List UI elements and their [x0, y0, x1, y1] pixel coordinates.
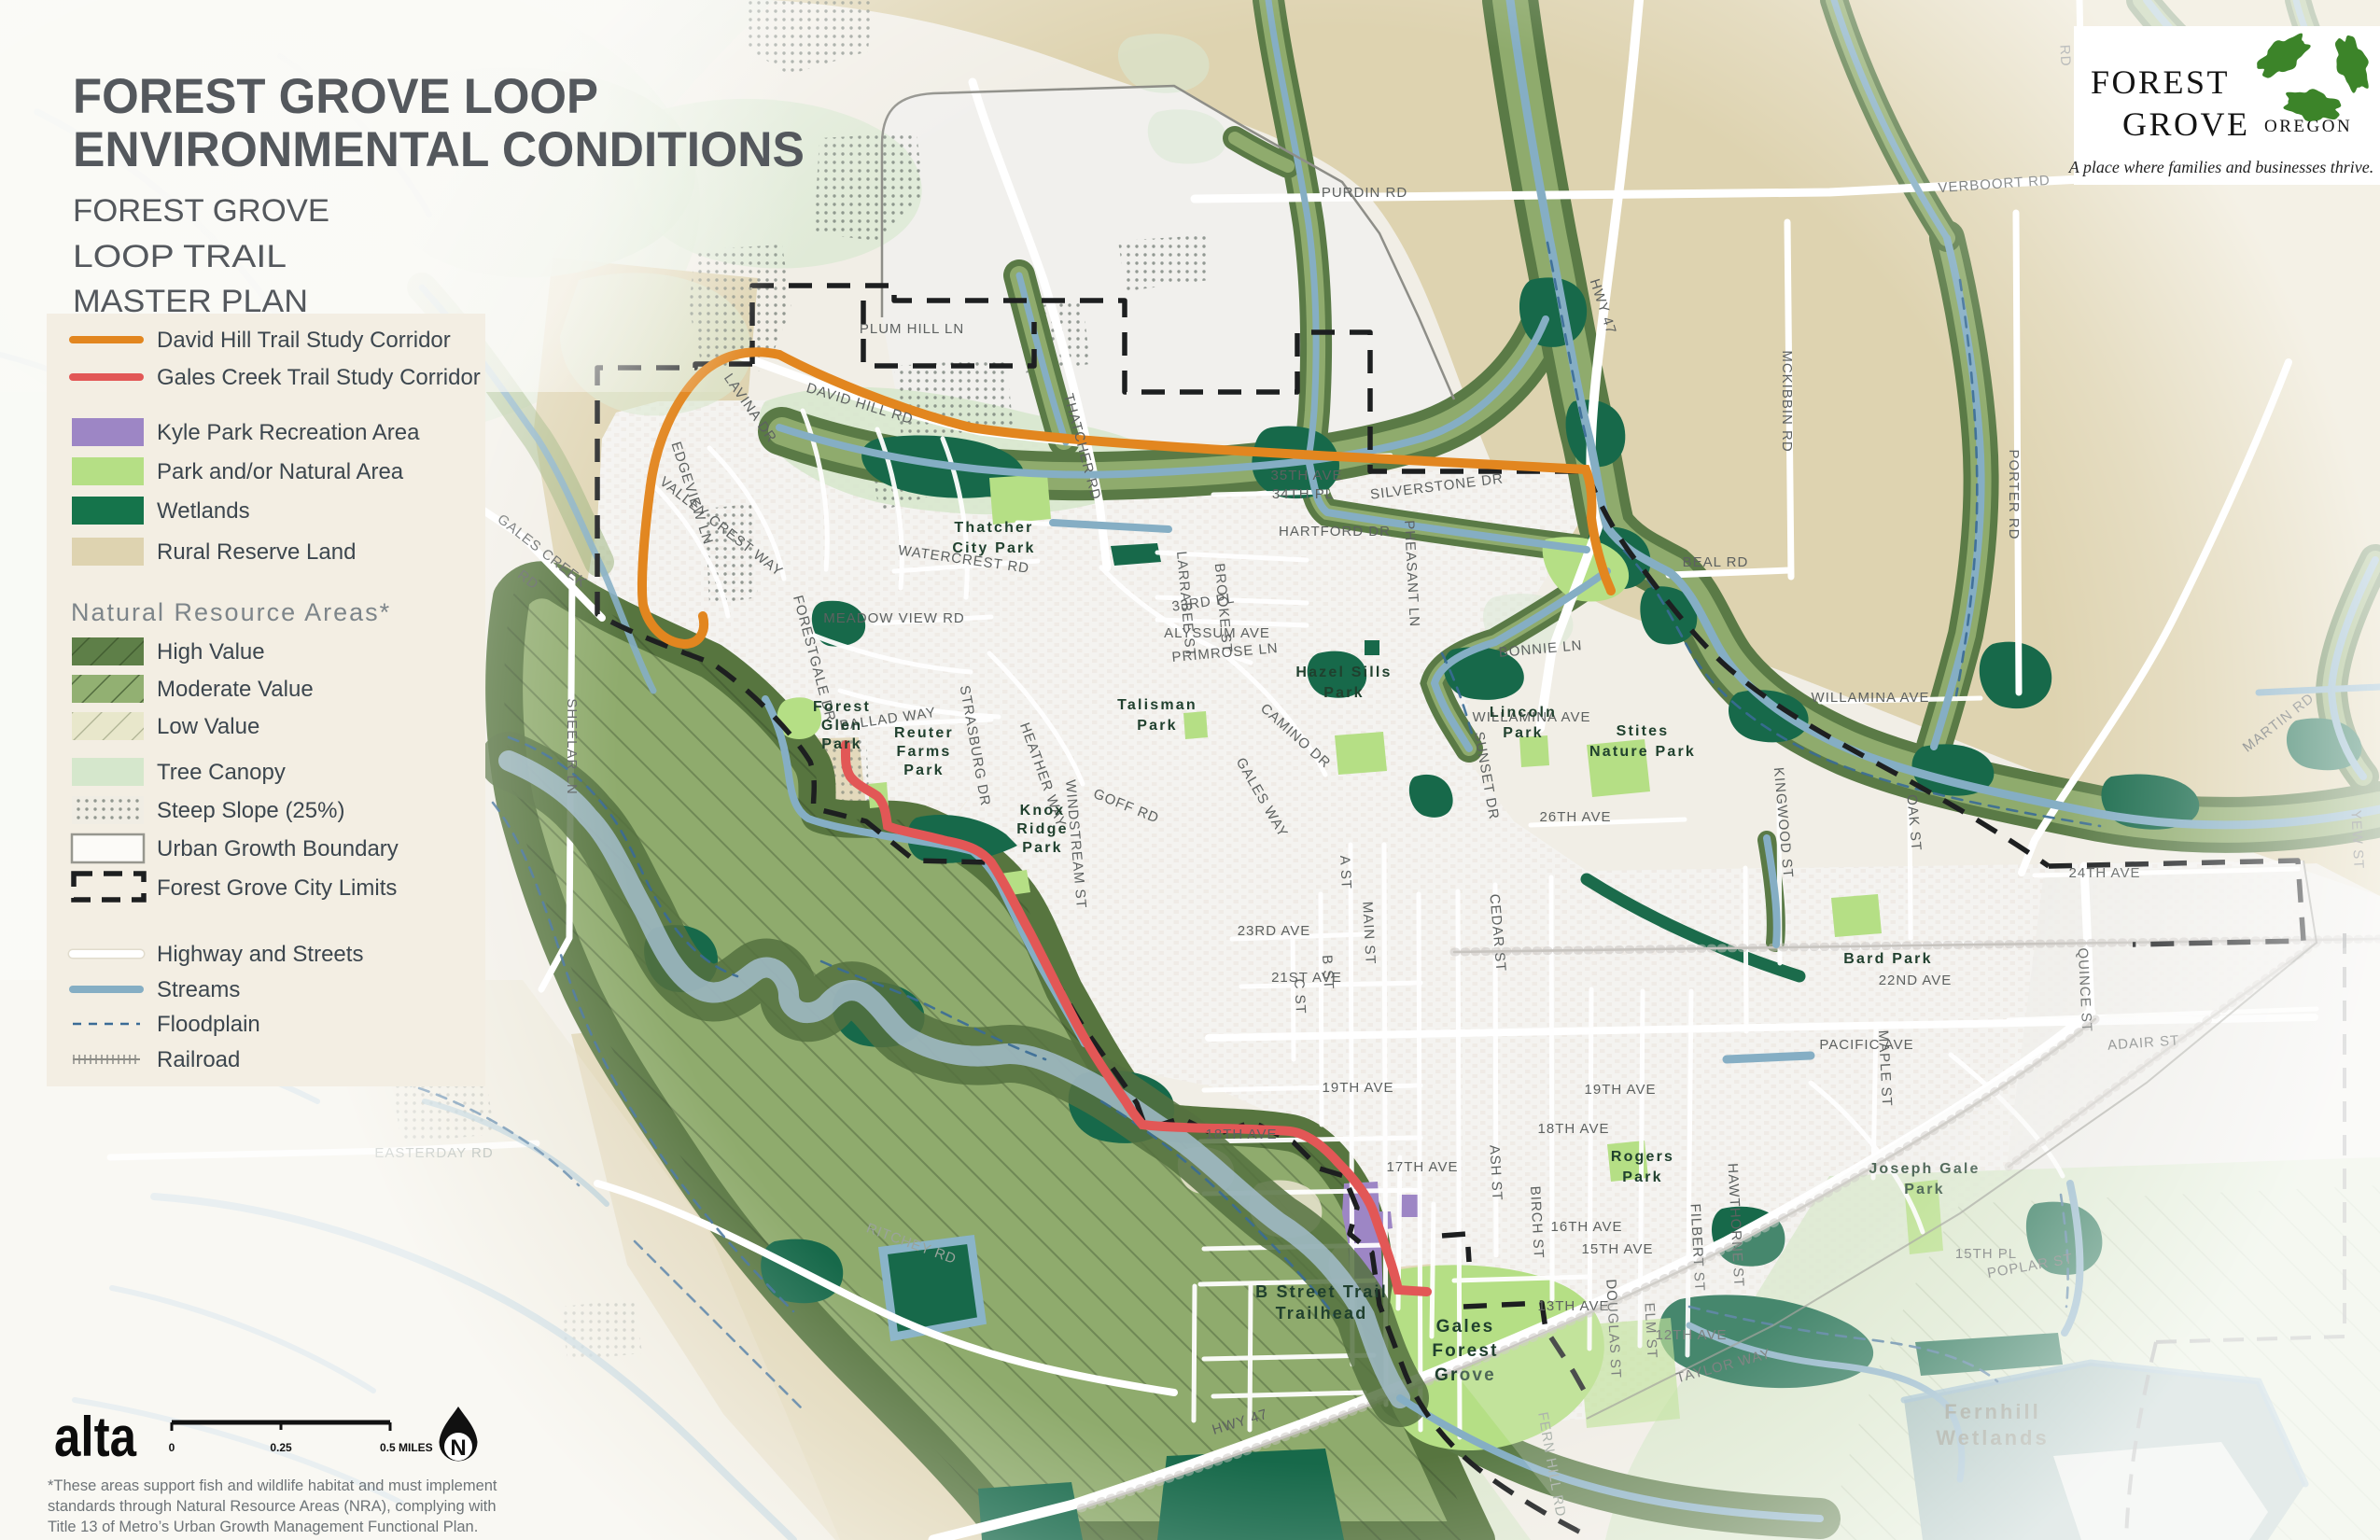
svg-text:Natural Resource Areas*: Natural Resource Areas* [71, 598, 391, 626]
svg-text:High Value: High Value [157, 639, 265, 665]
svg-text:FOREST: FOREST [2091, 63, 2230, 101]
svg-text:Moderate Value: Moderate Value [157, 677, 314, 702]
svg-text:0.25: 0.25 [270, 1441, 292, 1454]
svg-text:Low Value: Low Value [157, 714, 259, 739]
svg-text:David Hill Trail Study Corrido: David Hill Trail Study Corridor [157, 328, 451, 353]
svg-text:Streams: Streams [157, 977, 240, 1002]
svg-text:N: N [450, 1435, 466, 1461]
svg-text:0.5 MILES: 0.5 MILES [380, 1441, 433, 1454]
svg-text:Gales Creek Trail Study Corrid: Gales Creek Trail Study Corridor [157, 365, 481, 390]
svg-text:Title 13 of Metro’s Urban Grow: Title 13 of Metro’s Urban Growth Managem… [48, 1519, 478, 1535]
svg-text:FOREST GROVE: FOREST GROVE [73, 193, 329, 229]
svg-text:FOREST GROVE LOOP: FOREST GROVE LOOP [73, 69, 598, 124]
svg-text:GROVE: GROVE [2122, 105, 2250, 143]
svg-text:ENVIRONMENTAL CONDITIONS: ENVIRONMENTAL CONDITIONS [73, 122, 805, 177]
svg-text:Kyle Park Recreation Area: Kyle Park Recreation Area [157, 420, 420, 445]
svg-text:Floodplain: Floodplain [157, 1012, 260, 1037]
svg-text:Park and/or Natural Area: Park and/or Natural Area [157, 459, 404, 484]
svg-text:alta: alta [54, 1406, 137, 1468]
svg-text:Railroad: Railroad [157, 1047, 240, 1072]
svg-text:Urban Growth Boundary: Urban Growth Boundary [157, 836, 399, 861]
svg-text:*These areas support fish and: *These areas support fish and wildlife h… [48, 1477, 497, 1494]
svg-text:standards through Natural Reso: standards through Natural Resource Areas… [48, 1498, 497, 1515]
svg-text:LOOP TRAIL: LOOP TRAIL [73, 239, 287, 274]
svg-text:Highway and Streets: Highway and Streets [157, 942, 363, 967]
svg-text:0: 0 [169, 1441, 175, 1454]
svg-text:Steep Slope (25%): Steep Slope (25%) [157, 798, 344, 823]
svg-text:Wetlands: Wetlands [157, 498, 250, 524]
svg-text:A place where families and bus: A place where families and businesses th… [2068, 158, 2373, 176]
svg-text:Rural Reserve Land: Rural Reserve Land [157, 539, 356, 565]
svg-text:Forest Grove City Limits: Forest Grove City Limits [157, 875, 397, 901]
svg-text:Tree Canopy: Tree Canopy [157, 760, 286, 785]
